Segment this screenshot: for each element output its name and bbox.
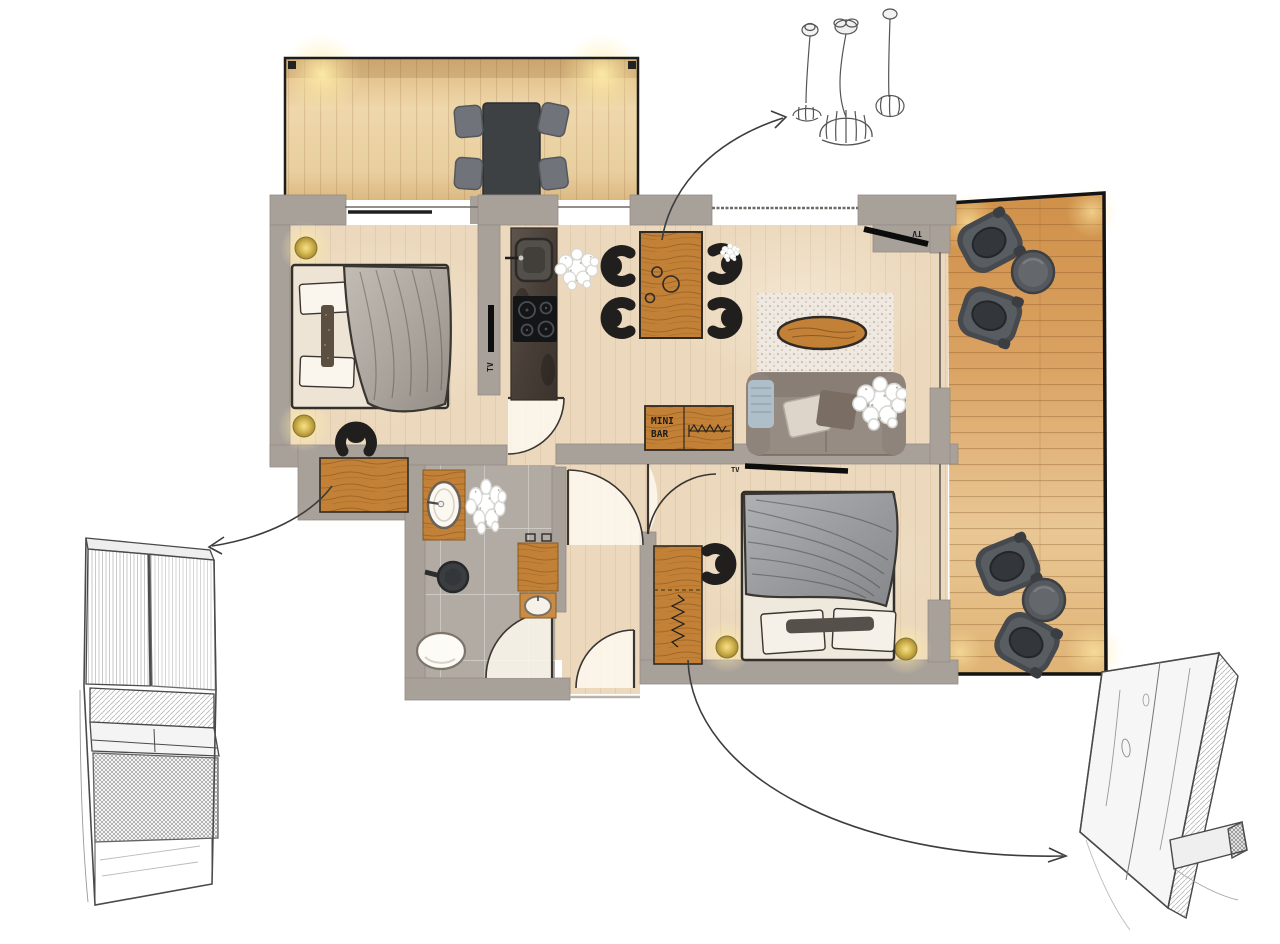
right-terrace bbox=[936, 186, 1124, 682]
sofa-pillow bbox=[816, 390, 859, 431]
floor-plan-canvas: TV TV MINI BAR bbox=[0, 0, 1280, 944]
sketch-wood-panel bbox=[1080, 653, 1247, 930]
bedside-lamp bbox=[293, 415, 315, 437]
sofa bbox=[747, 373, 907, 455]
outdoor-dining-table bbox=[483, 103, 540, 199]
corner-post bbox=[628, 61, 636, 69]
minibar-label-top: MINI bbox=[651, 416, 674, 427]
corner-post bbox=[288, 61, 296, 69]
tv-bedroom2-label: TV bbox=[731, 466, 740, 474]
sketch-wardrobe-nook bbox=[80, 538, 219, 905]
tv-bedroom1-label: TV bbox=[486, 362, 495, 372]
bedside-lamp bbox=[295, 237, 317, 259]
bed-blanket bbox=[744, 492, 897, 606]
bedside-lamp bbox=[895, 638, 917, 660]
living-room bbox=[747, 293, 907, 455]
coffee-table bbox=[778, 317, 866, 349]
bedside-lamp bbox=[716, 636, 738, 658]
minibar: MINI BAR bbox=[645, 406, 733, 450]
sketch-pendant-lamps bbox=[793, 9, 904, 145]
tv-living-label: TV bbox=[912, 229, 922, 238]
minibar-label-bottom: BAR bbox=[651, 429, 668, 440]
